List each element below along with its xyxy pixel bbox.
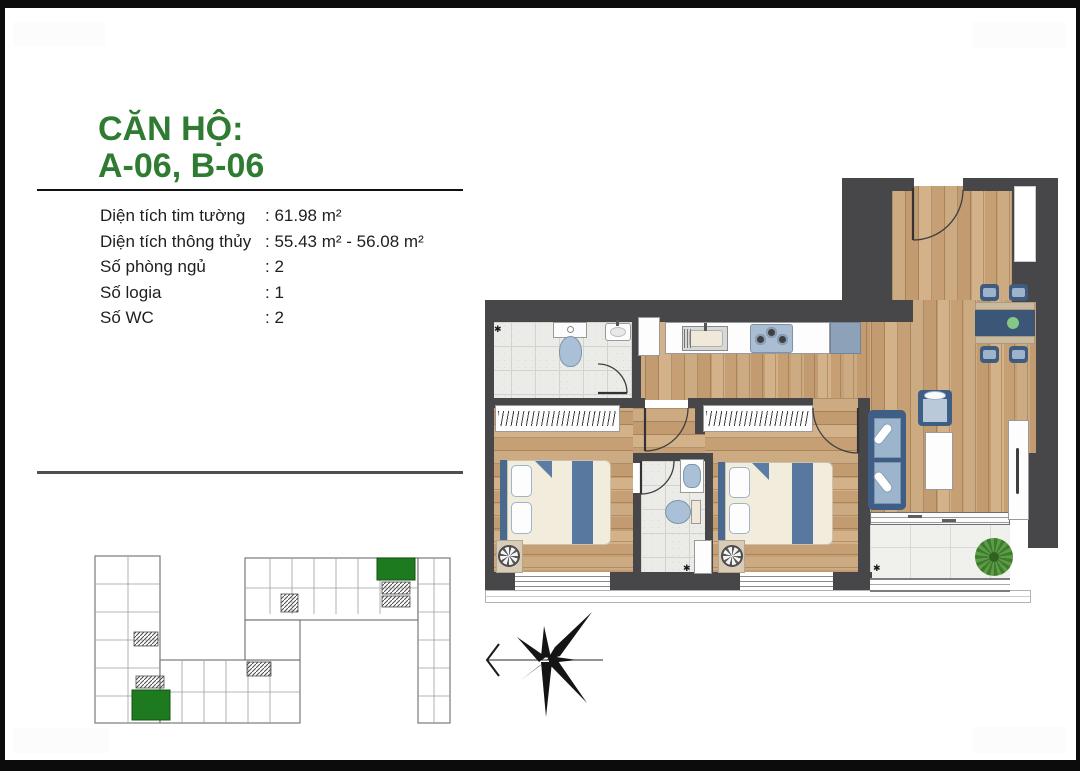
spec-value: : 2 — [265, 305, 284, 331]
frame-left — [0, 0, 5, 771]
compass-petal-e — [549, 656, 577, 663]
entry-door-arc — [913, 190, 963, 240]
spec-value: : 1 — [265, 280, 284, 306]
frame-top — [0, 0, 1080, 8]
core-hatch — [136, 676, 164, 688]
compass-petal-ne — [547, 612, 592, 660]
spec-value: : 2 — [265, 254, 284, 280]
site-key-plan — [60, 548, 460, 748]
frame-bottom — [0, 760, 1080, 771]
bathroom2-door-arc — [641, 461, 674, 494]
spec-row: Số WC : 2 — [100, 305, 480, 331]
spec-row: Diện tích tim tường : 61.98 m² — [100, 203, 480, 229]
spec-row: Diện tích thông thủy : 55.43 m² - 56.08 … — [100, 229, 480, 255]
spec-row: Số phòng ngủ : 2 — [100, 254, 480, 280]
door-arcs-overlay — [480, 172, 1065, 622]
page-title: CĂN HỘ: A-06, B-06 — [98, 111, 478, 185]
title-line1: CĂN HỘ: — [98, 111, 478, 148]
highlighted-unit-b06 — [132, 690, 170, 720]
bathroom1-door-arc — [598, 364, 627, 393]
building-connector — [245, 620, 300, 660]
divider-top — [37, 189, 463, 191]
core-hatch — [134, 632, 158, 646]
divider-bottom — [37, 471, 463, 474]
brochure-page: CĂN HỘ: A-06, B-06 Diện tích tim tường :… — [0, 0, 1080, 771]
watermark-box — [972, 22, 1066, 48]
highlighted-unit-a06 — [377, 558, 415, 580]
watermark-box — [972, 727, 1066, 753]
compass-rose — [475, 600, 615, 725]
title-line2: A-06, B-06 — [98, 148, 478, 185]
spec-label: Diện tích thông thủy — [100, 229, 265, 255]
bedroom2-door-arc — [813, 408, 858, 453]
core-hatch — [247, 662, 271, 676]
building-lower-wing — [160, 660, 300, 723]
watermark-box — [13, 22, 105, 46]
frame-right — [1076, 0, 1080, 771]
spec-row: Số logia : 1 — [100, 280, 480, 306]
compass-petal-nw — [517, 637, 546, 662]
spec-label: Diện tích tim tường — [100, 203, 265, 229]
core-hatch — [382, 596, 410, 607]
core-hatch — [382, 582, 410, 594]
compass-petal-se — [550, 658, 587, 703]
compass-petal-s — [541, 662, 552, 717]
spec-label: Số logia — [100, 280, 265, 306]
spec-label: Số phòng ngủ — [100, 254, 265, 280]
spec-table: Diện tích tim tường : 61.98 m² Diện tích… — [100, 203, 480, 331]
bedroom1-door-arc — [645, 408, 688, 451]
spec-value: : 61.98 m² — [265, 203, 342, 229]
floor-plan: ✱ ✱ — [480, 172, 1065, 622]
compass-petal-n — [541, 626, 551, 658]
spec-label: Số WC — [100, 305, 265, 331]
spec-value: : 55.43 m² - 56.08 m² — [265, 229, 424, 255]
core-hatch — [281, 594, 298, 612]
